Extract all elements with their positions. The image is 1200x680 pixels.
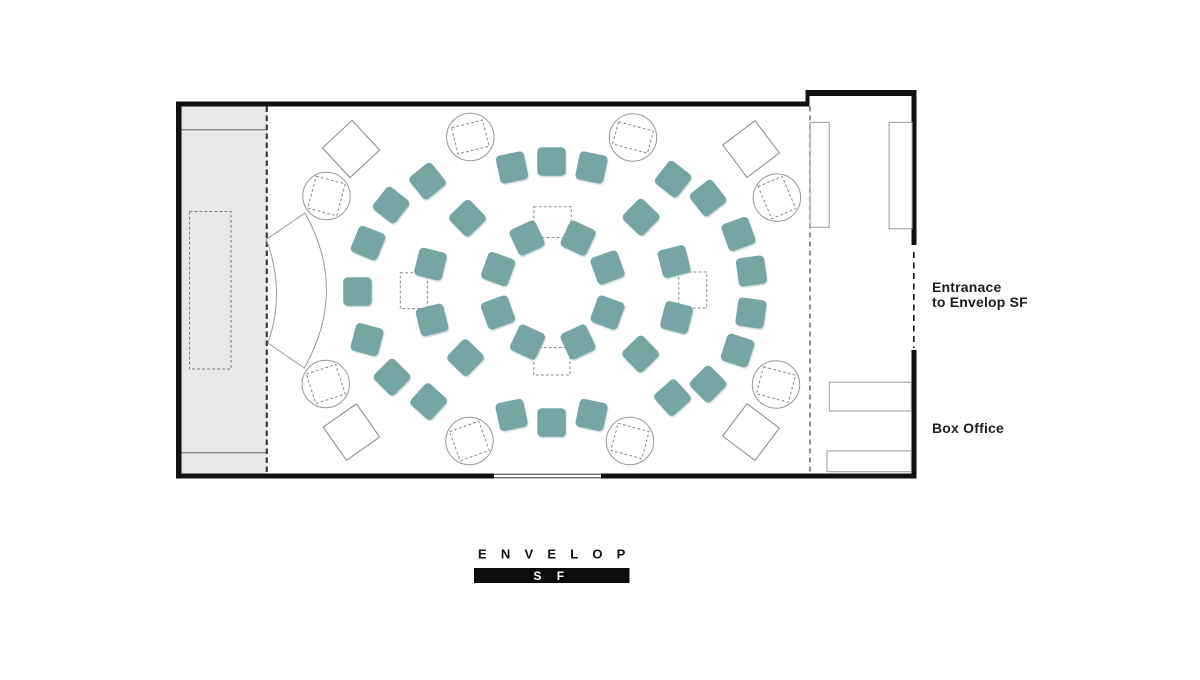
svg-text:Box Office: Box Office (932, 420, 1004, 436)
svg-text:ENVELOP: ENVELOP (478, 547, 640, 562)
svg-text:Entranace: Entranace (932, 279, 1002, 295)
svg-text:S F: S F (533, 569, 570, 583)
svg-text:to Envelop SF: to Envelop SF (932, 294, 1028, 310)
